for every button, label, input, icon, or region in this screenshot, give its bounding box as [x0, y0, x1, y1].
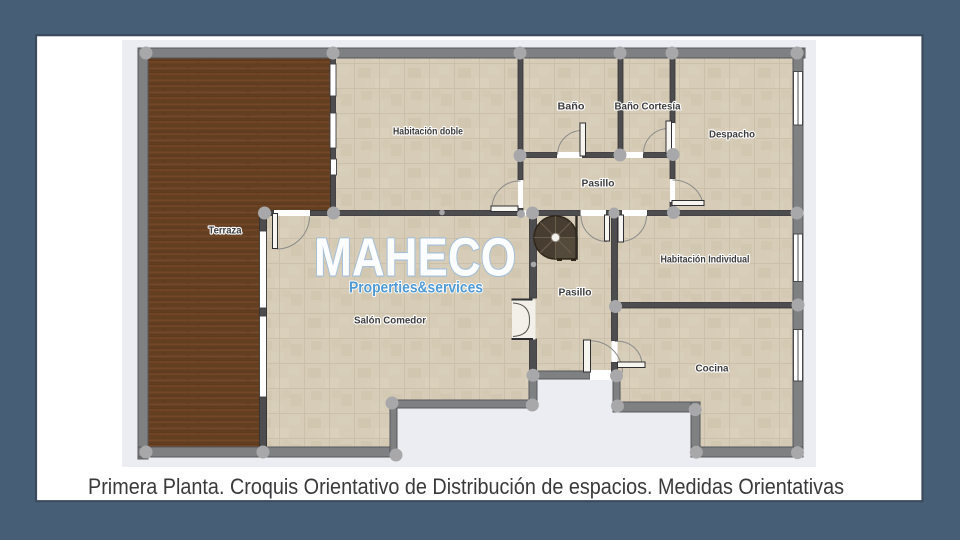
svg-text:Habitación doble: Habitación doble	[393, 127, 463, 138]
svg-text:Baño Cortesía: Baño Cortesía	[615, 102, 681, 113]
svg-text:Primera Planta. Croquis Orient: Primera Planta. Croquis Orientativo de D…	[88, 474, 844, 499]
svg-text:Salón Comedor: Salón Comedor	[354, 316, 426, 327]
svg-text:Pasillo: Pasillo	[559, 288, 592, 299]
svg-text:Despacho: Despacho	[709, 130, 755, 141]
svg-text:Properties&services: Properties&services	[349, 280, 483, 297]
svg-text:Terraza: Terraza	[209, 226, 242, 237]
svg-text:Cocina: Cocina	[696, 364, 729, 375]
svg-text:MAHECO: MAHECO	[314, 228, 516, 288]
svg-text:Baño: Baño	[558, 102, 585, 113]
svg-text:Habitación Individual: Habitación Individual	[661, 255, 750, 266]
svg-text:Pasillo: Pasillo	[582, 179, 615, 190]
